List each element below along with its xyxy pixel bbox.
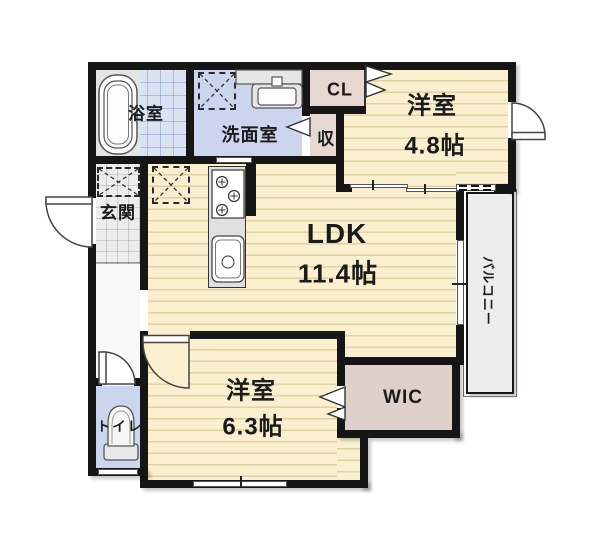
wall bbox=[190, 331, 345, 339]
refrigerator-space-icon bbox=[152, 166, 190, 204]
shoe-storage-space-icon bbox=[97, 167, 140, 197]
kitchen-counter bbox=[208, 166, 246, 288]
wall bbox=[186, 62, 194, 156]
label-bedroom2: 洋室 bbox=[226, 371, 276, 406]
door-handle-tick bbox=[372, 180, 374, 190]
wall bbox=[140, 331, 148, 488]
label-toilet: トイレ bbox=[97, 415, 144, 435]
wall bbox=[508, 62, 516, 102]
wall bbox=[456, 325, 464, 365]
bedroom1-sliding-door-panel bbox=[350, 184, 408, 189]
wall bbox=[96, 378, 102, 386]
shutter-mark bbox=[459, 185, 467, 187]
label-bedroom1: 洋室 bbox=[407, 86, 457, 121]
shutter-mark bbox=[471, 189, 479, 191]
shutter-mark bbox=[459, 189, 467, 191]
label-balcony: バルコニー bbox=[480, 256, 499, 326]
toilet-window bbox=[98, 469, 138, 475]
wall bbox=[88, 62, 96, 198]
window-handle-tick bbox=[452, 283, 468, 285]
wall bbox=[494, 184, 516, 192]
door-handle-tick bbox=[424, 184, 426, 194]
wall bbox=[246, 164, 256, 216]
bedroom2-floor-ext bbox=[337, 438, 360, 480]
wall bbox=[337, 331, 345, 386]
entrance-door-swing-icon bbox=[46, 197, 92, 247]
wall bbox=[88, 244, 96, 476]
wall bbox=[456, 186, 464, 240]
wall bbox=[302, 106, 366, 114]
shutter-mark bbox=[483, 185, 491, 187]
wall bbox=[140, 164, 148, 290]
wall bbox=[345, 357, 460, 365]
label-storage: 収 bbox=[317, 125, 335, 150]
washing-machine-space-icon bbox=[198, 72, 236, 110]
label-bedroom2-size: 6.3帖 bbox=[222, 407, 283, 442]
floor-plan: 浴室 洗面室 CL 収 洋室 4.8帖 玄関 LDK 11.4帖 バルコニー 洋… bbox=[0, 0, 600, 558]
washroom-sliding-door bbox=[216, 157, 252, 163]
wall bbox=[452, 357, 460, 438]
label-washroom: 洗面室 bbox=[222, 121, 279, 147]
label-wic: WIC bbox=[383, 387, 423, 409]
wall bbox=[336, 106, 344, 192]
bedroom1-door-swing-icon bbox=[512, 103, 545, 140]
wall bbox=[134, 378, 140, 386]
window-handle-tick bbox=[240, 476, 242, 488]
label-bath: 浴室 bbox=[128, 100, 164, 125]
hallway-floor bbox=[96, 264, 140, 386]
label-bedroom1-size: 4.8帖 bbox=[404, 126, 465, 161]
label-ldk: LDK bbox=[307, 218, 368, 250]
entrance-step-line bbox=[96, 262, 140, 264]
shutter-mark bbox=[483, 189, 491, 191]
shutter-mark bbox=[471, 185, 479, 187]
wall bbox=[337, 430, 460, 438]
label-ldk-size: 11.4帖 bbox=[298, 254, 378, 291]
label-cl: CL bbox=[327, 80, 353, 101]
bedroom1-sliding-door-panel bbox=[406, 188, 458, 193]
label-entrance: 玄関 bbox=[100, 199, 136, 224]
